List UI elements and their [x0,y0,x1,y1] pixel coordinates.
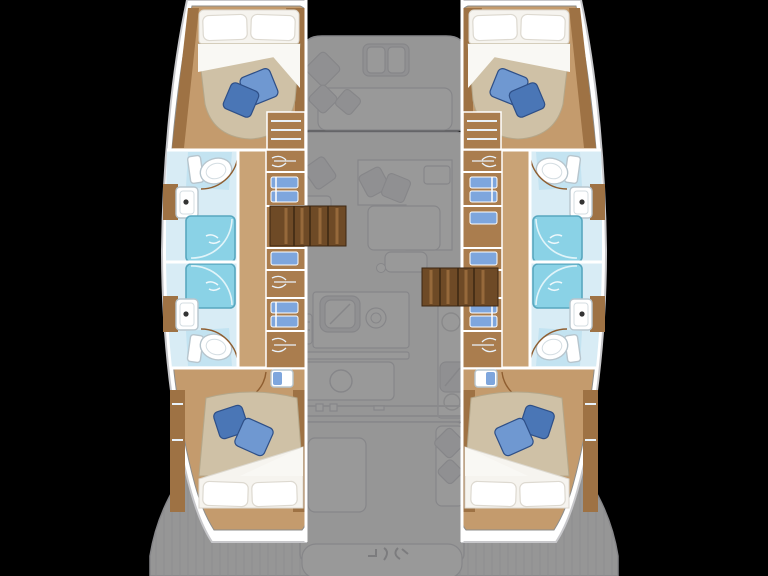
linen-bin [271,177,298,188]
foredeck-lounge [303,36,465,130]
floorplan-canvas [0,0,768,576]
starboard-stairs [422,268,498,306]
white-pillow [203,14,248,41]
double-bed-aft [199,392,303,508]
galley-island [300,362,394,400]
cabin-shelf-unit [267,112,305,150]
storage-lockers [266,150,306,368]
galley [296,292,466,418]
aft-cockpit [300,422,466,576]
faucet [183,199,188,204]
faucet [183,311,188,316]
white-pillow [203,481,249,507]
foredeck-bench [318,88,452,130]
footstool [385,252,427,272]
port-hull [162,0,306,542]
wardrobe [170,390,185,512]
cockpit-table [308,438,366,512]
port-stairs [270,206,346,246]
linen-bin [271,191,298,202]
linen-bin [271,252,298,265]
transom-bench [302,544,462,576]
linen-bin [271,316,298,327]
white-pillow [252,481,298,507]
stove-burner [366,308,386,328]
salon-table [368,206,440,250]
corridor [238,150,266,368]
linen-bin [271,302,298,313]
catamaran-floorplan-svg [0,0,768,576]
shower [186,216,235,262]
cabin-vanity [271,370,293,387]
white-pillow [251,14,296,41]
